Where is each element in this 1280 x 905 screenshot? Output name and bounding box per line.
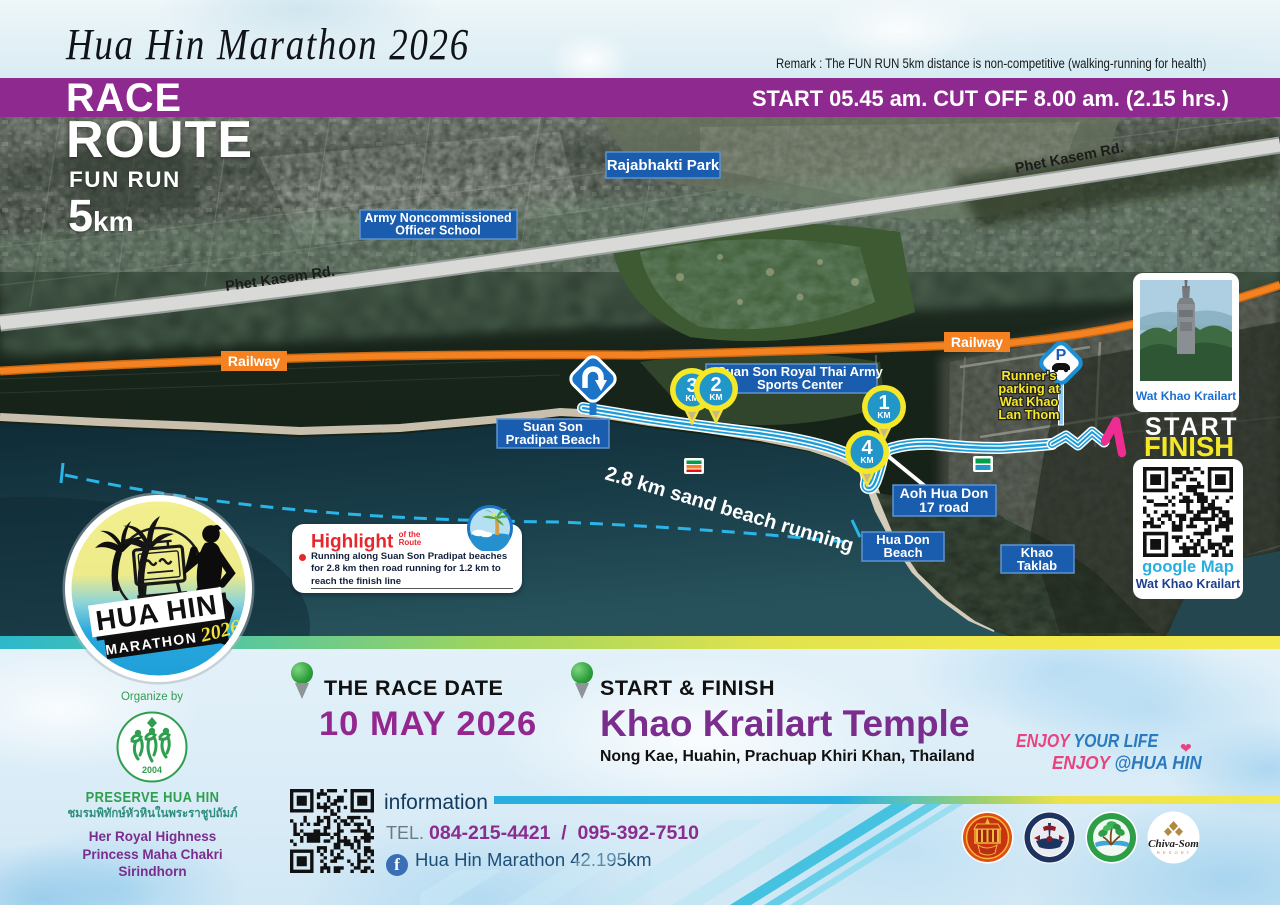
svg-text:Runner'sparking atWat KhaoLan: Runner'sparking atWat KhaoLan Thom (998, 368, 1060, 422)
svg-text:2004: 2004 (142, 765, 162, 775)
svg-text:KM: KM (877, 410, 890, 420)
svg-text:KM: KM (860, 455, 873, 465)
svg-text:R E S O R T: R E S O R T (1157, 850, 1190, 855)
svg-text:Chiva-Som: Chiva-Som (1148, 838, 1199, 850)
svg-text:Railway: Railway (228, 353, 280, 369)
svg-text:KhaoTaklab: KhaoTaklab (1017, 545, 1057, 573)
svg-text:KM: KM (709, 392, 722, 402)
svg-text:Railway: Railway (951, 334, 1003, 350)
svg-text:P: P (1056, 347, 1067, 364)
svg-text:Rajabhakti Park: Rajabhakti Park (607, 157, 720, 174)
svg-text:Hua DonBeach: Hua DonBeach (876, 532, 930, 560)
